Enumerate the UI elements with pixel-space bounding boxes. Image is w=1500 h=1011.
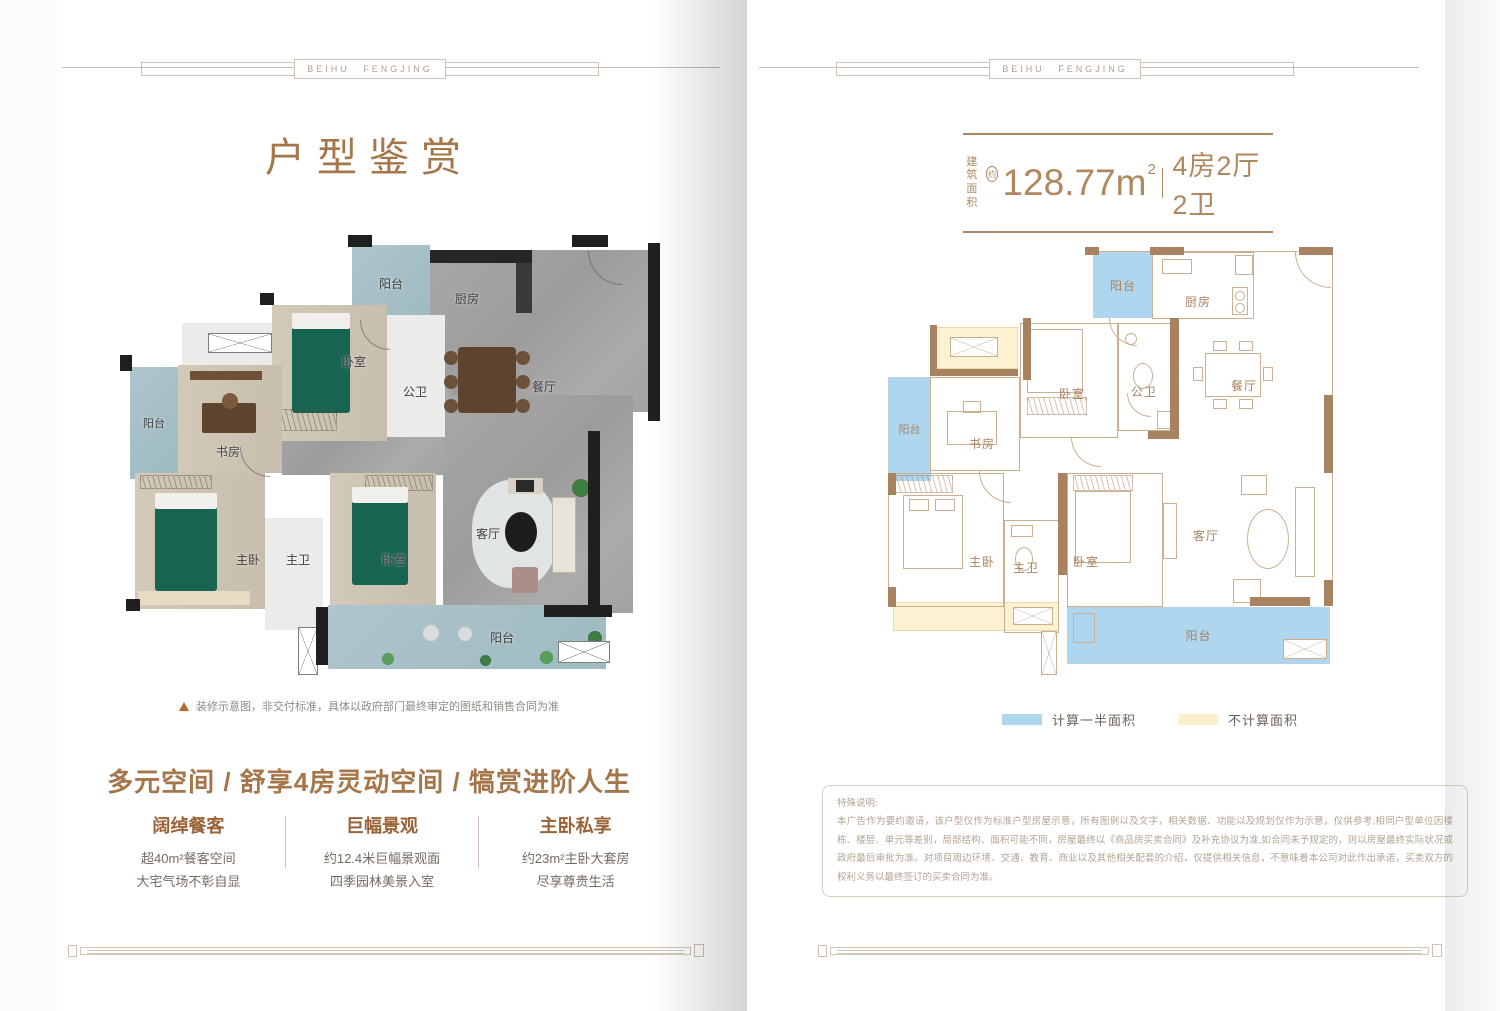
- door-arc-icon: [1295, 252, 1331, 288]
- floorplan-render: 阳台 阳台: [120, 235, 660, 680]
- wall-segment: [1170, 318, 1179, 438]
- headline: 多元空间 / 舒享4房灵动空间 / 犒赏进阶人生: [57, 762, 681, 799]
- burner-icon: [1235, 303, 1245, 313]
- room-label-kitchen: 厨房: [455, 290, 479, 307]
- page-spine-shadow: [652, 0, 747, 1011]
- wall-segment: [930, 325, 937, 371]
- stool-icon: [458, 627, 472, 641]
- room-label-kitchen: 厨房: [1185, 293, 1211, 310]
- bed-icon: [1027, 329, 1083, 393]
- tv-icon: [516, 480, 534, 492]
- footer-ornament: [68, 945, 77, 957]
- sofa-icon: [552, 497, 576, 573]
- wall-segment: [1148, 431, 1179, 439]
- room-label-bedroom: 卧室: [342, 353, 366, 370]
- chair-icon: [222, 393, 238, 409]
- bookshelf-icon: [190, 371, 262, 380]
- feature-line: 尽享尊贵生活: [479, 871, 672, 894]
- window-icon: [208, 333, 272, 353]
- chair-icon: [1239, 399, 1253, 409]
- brochure-spread: BEIHU FENGJING 户型鉴赏 阳台: [0, 0, 1500, 1011]
- notes-body: 本广告作为要约邀请，该户型仅作为标准户型房屋示意，所有图例以及文字，相关数据、功…: [837, 813, 1453, 887]
- room-label-balcony: 阳台: [490, 629, 514, 646]
- pillow-icon: [155, 493, 217, 509]
- area-exponent: 2: [1147, 161, 1155, 178]
- room-label-guest-bath: 公卫: [1131, 383, 1157, 400]
- window-icon: [1283, 639, 1327, 659]
- room-balcony-left: 阳台: [888, 377, 931, 481]
- room-label-guest-bath: 公卫: [403, 383, 427, 400]
- header-brand-box: BEIHU FENGJING: [294, 59, 446, 79]
- pillow-icon: [292, 313, 350, 329]
- plan-disclaimer: 装修示意图，非交付标准，具体以政府部门最终审定的图纸和销售合同为准: [57, 698, 681, 714]
- page-edge-shadow: [1445, 0, 1500, 1011]
- legend-label: 不计算面积: [1228, 710, 1298, 729]
- wall-segment: [588, 431, 600, 613]
- notes-title: 特殊说明:: [837, 795, 1453, 809]
- right-page: BEIHU FENGJING 建筑 面积 约 128.77m 2 4房2厅2卫 …: [747, 0, 1445, 1011]
- chair-icon: [1213, 341, 1227, 351]
- wall-segment: [888, 473, 896, 495]
- utility-icon: [1073, 613, 1095, 643]
- wall-segment: [888, 587, 896, 607]
- wall-segment: [1299, 247, 1333, 255]
- wardrobe-icon: [140, 475, 212, 489]
- room-label-balcony: 阳台: [143, 415, 165, 431]
- wall-segment: [1023, 318, 1031, 380]
- header-brand-box: BEIHU FENGJING: [989, 59, 1141, 79]
- dining-table-icon: [458, 347, 516, 413]
- room-master-bath: [265, 518, 323, 630]
- unit-spec: 建筑 面积 约 128.77m 2 4房2厅2卫: [963, 133, 1273, 233]
- window-icon: [950, 337, 998, 357]
- chair-icon: [516, 375, 530, 389]
- plan-legend: 计算一半面积 不计算面积: [1002, 710, 1298, 729]
- legend-label: 计算一半面积: [1052, 710, 1136, 729]
- coffee-table-icon: [505, 512, 537, 552]
- door-arc-icon: [1071, 437, 1101, 467]
- room-label-bedroom: 卧室: [1073, 553, 1099, 570]
- feature-title: 主卧私享: [479, 812, 672, 838]
- footer-ornament: [80, 947, 691, 955]
- wall-segment: [260, 293, 274, 305]
- wall-segment: [316, 607, 328, 665]
- sink-icon: [1011, 525, 1033, 537]
- warning-triangle-icon: [179, 702, 189, 711]
- feature-title: 阔绰餐客: [92, 812, 285, 838]
- wall-segment: [1324, 395, 1333, 473]
- feature-view: 巨幅景观 约12.4米巨幅景观面 四季园林美景入室: [286, 812, 479, 894]
- tv-cabinet-icon: [1163, 503, 1177, 559]
- footer-ornament: [1432, 944, 1442, 957]
- kitchen-stove: [516, 263, 532, 313]
- room-label-master: 主卧: [236, 551, 260, 568]
- pillow-icon: [909, 499, 929, 511]
- window-icon: [1013, 607, 1053, 625]
- wall-segment: [1150, 247, 1184, 255]
- legend-no-area: 不计算面积: [1178, 710, 1298, 729]
- chair-icon: [963, 401, 981, 413]
- layout-value: 4房2厅2卫: [1172, 144, 1273, 222]
- window-icon: [1041, 631, 1057, 675]
- room-label-bedroom: 卧室: [1059, 385, 1085, 402]
- special-notes-box: 特殊说明: 本广告作为要约邀请，该户型仅作为标准户型房屋示意，所有图例以及文字，…: [822, 785, 1468, 897]
- room-label-dining: 餐厅: [532, 378, 556, 395]
- wall-segment: [1085, 247, 1099, 255]
- footer-ornament: [818, 945, 827, 957]
- room-label-balcony: 阳台: [379, 275, 403, 292]
- chair-icon: [1239, 341, 1253, 351]
- area-value: 128.77m: [1002, 162, 1146, 204]
- feature-line: 约12.4米巨幅景观面: [286, 848, 479, 871]
- sofa-icon: [1295, 487, 1315, 577]
- stool-icon: [423, 625, 439, 641]
- wall-segment: [572, 235, 608, 247]
- feature-dining: 阔绰餐客 超40m²餐客空间 大宅气场不彰自显: [92, 812, 285, 894]
- coffee-table-icon: [1247, 509, 1289, 569]
- room-label-master-bath: 主卫: [1013, 559, 1039, 576]
- pillow-icon: [935, 499, 955, 511]
- chair-icon: [1213, 399, 1227, 409]
- floorplan-schematic: 阳台 阳台 阳台: [875, 235, 1427, 690]
- brand-text: BEIHU FENGJING: [1002, 64, 1128, 74]
- wall-segment: [930, 369, 1018, 376]
- room-label-dining: 餐厅: [1231, 377, 1257, 394]
- footer-rule: [68, 944, 704, 957]
- sink-icon: [1162, 259, 1192, 274]
- plant-icon: [382, 653, 394, 665]
- brand-text: BEIHU FENGJING: [307, 64, 433, 74]
- feature-title: 巨幅景观: [286, 812, 479, 838]
- feature-line: 四季园林美景入室: [286, 871, 479, 894]
- feature-line: 超40m²餐客空间: [92, 848, 285, 871]
- burner-icon: [1235, 291, 1245, 301]
- chair-icon: [444, 375, 458, 389]
- legend-swatch-yellow: [1178, 714, 1218, 725]
- room-label-study: 书房: [216, 443, 240, 460]
- wardrobe-icon: [275, 409, 337, 431]
- page-title: 户型鉴赏: [57, 125, 681, 183]
- room-guest-bath: [387, 315, 445, 437]
- room-label-balcony: 阳台: [1185, 627, 1211, 644]
- footer-rule: [818, 944, 1442, 957]
- wall-segment: [120, 355, 132, 371]
- room-label-master-bath: 主卫: [286, 551, 310, 568]
- left-page: BEIHU FENGJING 户型鉴赏 阳台: [57, 0, 747, 1011]
- plan-disclaimer-text: 装修示意图，非交付标准，具体以政府部门最终审定的图纸和销售合同为准: [196, 701, 559, 713]
- bay-strip: [138, 591, 250, 605]
- armchair-icon: [512, 567, 538, 593]
- legend-half-area: 计算一半面积: [1002, 710, 1136, 729]
- room-balcony-top: 阳台: [1093, 252, 1153, 318]
- wall-segment: [126, 599, 140, 611]
- plant-icon: [480, 655, 491, 666]
- wall-segment: [1324, 580, 1333, 606]
- spec-divider: [1162, 168, 1164, 198]
- chair-icon: [444, 351, 458, 365]
- kitchen-counter: [430, 250, 532, 263]
- area-label: 建筑 面积: [963, 156, 983, 211]
- wardrobe-icon: [1073, 475, 1133, 491]
- wardrobe-icon: [895, 475, 953, 493]
- feature-master: 主卧私享 约23m²主卧大套房 尽享尊贵生活: [479, 812, 672, 894]
- pillow-icon: [352, 487, 408, 503]
- armchair-icon: [1241, 475, 1267, 495]
- chair-icon: [1263, 367, 1273, 381]
- feature-columns: 阔绰餐客 超40m²餐客空间 大宅气场不彰自显 巨幅景观 约12.4米巨幅景观面…: [92, 812, 672, 894]
- room-label-master: 主卧: [969, 553, 995, 570]
- window-icon: [298, 627, 318, 675]
- fridge-icon: [1235, 255, 1253, 275]
- room-label-bedroom: 卧室: [382, 551, 406, 568]
- chair-icon: [1193, 367, 1203, 381]
- wall-segment: [1250, 597, 1310, 606]
- legend-swatch-blue: [1002, 714, 1042, 725]
- footer-ornament: [830, 947, 1429, 955]
- room-label-balcony: 阳台: [899, 421, 921, 437]
- wall-segment: [348, 235, 372, 247]
- plant-icon: [540, 651, 553, 664]
- chair-icon: [516, 351, 530, 365]
- room-balcony-left: 阳台: [130, 367, 178, 479]
- window-icon: [558, 641, 610, 663]
- chair-icon: [516, 399, 530, 413]
- wall-segment: [1058, 473, 1067, 575]
- chair-icon: [444, 399, 458, 413]
- approx-circle-icon: 约: [986, 166, 999, 182]
- room-label-living: 客厅: [476, 525, 500, 542]
- room-label-living: 客厅: [1193, 527, 1219, 544]
- room-label-study: 书房: [969, 435, 995, 452]
- room-label-balcony: 阳台: [1110, 277, 1136, 294]
- feature-line: 大宅气场不彰自显: [92, 871, 285, 894]
- feature-line: 约23m²主卧大套房: [479, 848, 672, 871]
- wall-segment: [544, 605, 612, 617]
